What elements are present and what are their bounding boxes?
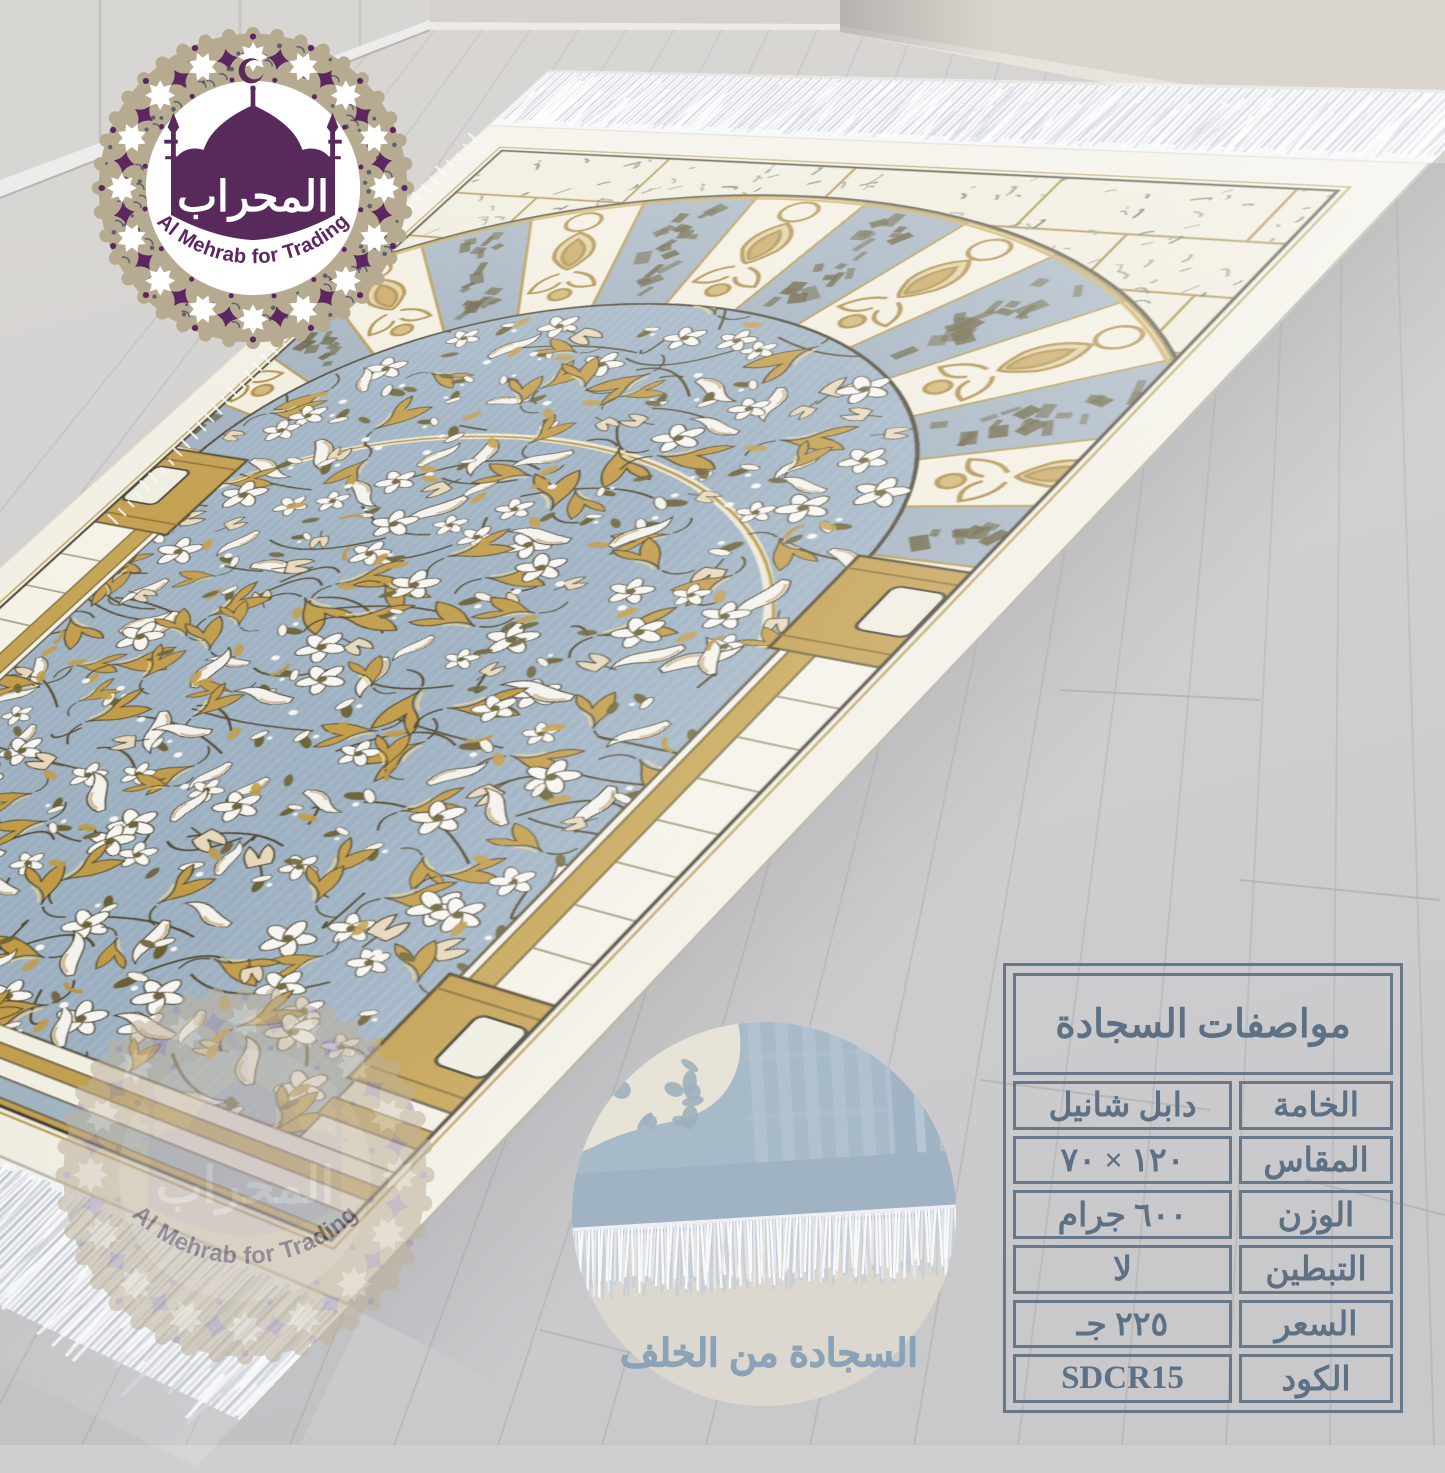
svg-text:السجادة من الخلف: السجادة من الخلف <box>620 1333 918 1376</box>
